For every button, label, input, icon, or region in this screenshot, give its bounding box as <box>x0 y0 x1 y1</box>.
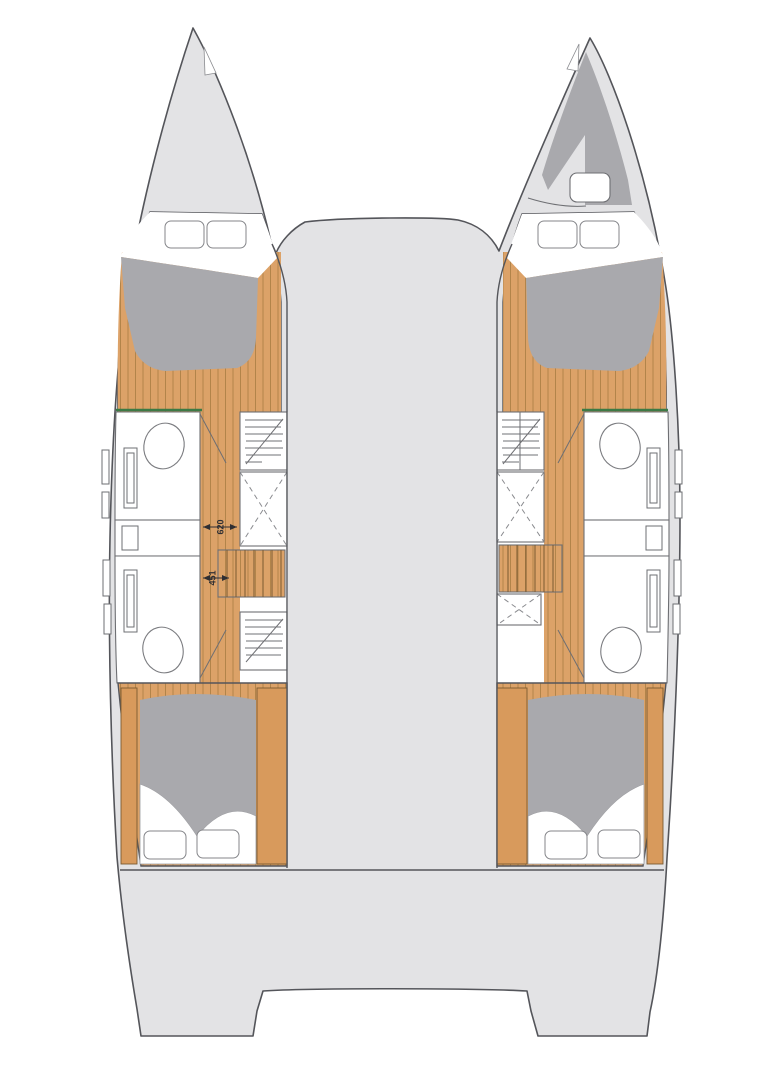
pillow <box>207 221 246 248</box>
pillow <box>580 221 619 248</box>
hull-window <box>104 604 111 634</box>
hull-window <box>674 560 681 596</box>
bedside-wood-panel <box>647 688 663 864</box>
pillow <box>598 830 640 858</box>
catamaran-floorplan-page: 620 451 <box>0 0 771 1080</box>
hull-window <box>673 604 680 634</box>
hull-window <box>102 450 109 484</box>
starboard-forward-cabin <box>503 212 666 412</box>
port-bow-fitting <box>204 47 216 75</box>
port-hull-interior: 620 451 <box>102 212 288 868</box>
hull-window <box>675 450 682 484</box>
cabinet-shell <box>115 520 200 556</box>
port-hanging-locker-forward <box>240 412 287 470</box>
cabinet-shell <box>584 520 669 556</box>
starboard-hanging-locker-forward <box>497 412 544 470</box>
bedside-wood-panel <box>257 688 287 864</box>
port-companionway-stairs <box>218 550 285 597</box>
starboard-locker-crossed-forward <box>497 472 544 542</box>
pillow <box>538 221 577 248</box>
dimension-451-label: 451 <box>207 570 217 585</box>
starboard-aft-cabin <box>497 683 666 866</box>
port-forward-cabin <box>118 212 281 412</box>
pillow <box>197 830 239 858</box>
port-mid-cabinet <box>115 520 200 556</box>
foredeck-hatch <box>570 173 610 202</box>
port-aft-cabin <box>118 683 287 866</box>
hull-window <box>103 560 110 596</box>
catamaran-floorplan-drawing: 620 451 <box>0 0 771 1080</box>
starboard-bow-fitting <box>567 44 579 71</box>
pillow <box>144 831 186 859</box>
port-locker-crossed <box>240 472 287 546</box>
starboard-companionway-stairs <box>499 545 562 592</box>
port-hanging-locker-aft <box>240 612 287 670</box>
bedside-wood-panel <box>497 688 527 864</box>
starboard-hull-interior <box>496 212 682 868</box>
starboard-locker-crossed-aft <box>497 594 541 625</box>
hull-window <box>102 492 109 518</box>
stairs-wood <box>218 550 285 597</box>
hull-window <box>675 492 682 518</box>
pillow <box>165 221 204 248</box>
starboard-mid-cabinet <box>584 520 669 556</box>
pillow <box>545 831 587 859</box>
dimension-620-label: 620 <box>215 519 225 534</box>
bedside-wood-panel <box>121 688 137 864</box>
